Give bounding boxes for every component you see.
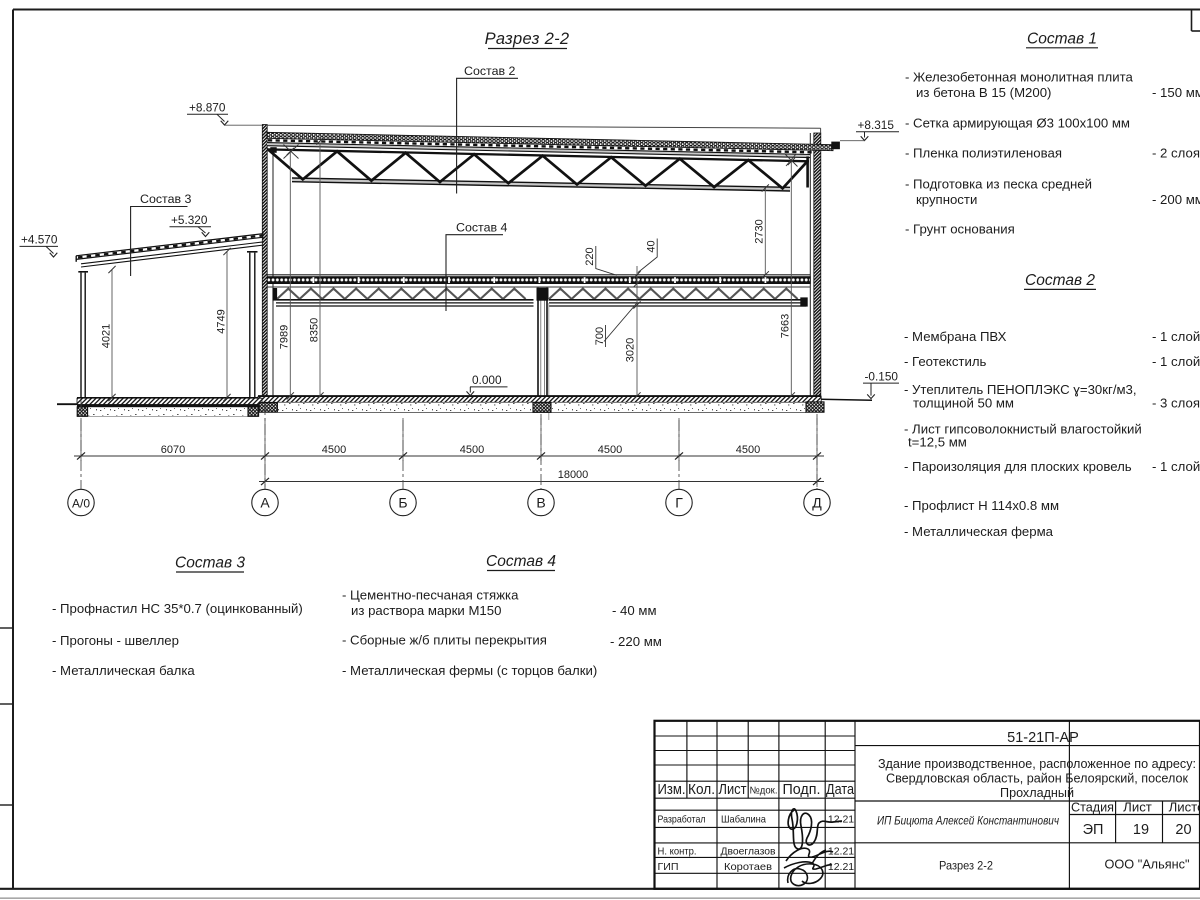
- svg-text:Коротаев: Коротаев: [724, 862, 772, 873]
- svg-text:№док.: №док.: [750, 785, 778, 796]
- svg-text:А: А: [260, 494, 270, 510]
- svg-text:40: 40: [645, 240, 657, 252]
- svg-text:Стадия: Стадия: [1071, 799, 1114, 814]
- svg-text:ЭП: ЭП: [1083, 822, 1104, 838]
- svg-text:- Подготовка из песка средней: - Подготовка из песка средней: [905, 177, 1092, 192]
- svg-text:А/0: А/0: [72, 496, 90, 510]
- svg-text:крупности: крупности: [916, 192, 977, 207]
- svg-text:Свердловская область, район Бе: Свердловская область, район Белоярский, …: [886, 771, 1189, 785]
- svg-text:2730: 2730: [753, 219, 765, 243]
- svg-text:+8.315: +8.315: [858, 118, 895, 132]
- svg-text:- Профлист Н 114х0.8 мм: - Профлист Н 114х0.8 мм: [904, 498, 1059, 513]
- svg-text:Разработал: Разработал: [658, 814, 706, 826]
- svg-text:- Железобетонная монолитная п: - Железобетонная монолитная плита: [905, 70, 1134, 85]
- svg-text:ГИП: ГИП: [658, 862, 679, 873]
- svg-text:ИП Бицюта Алексей Константинов: ИП Бицюта Алексей Константинович: [877, 814, 1059, 828]
- svg-text:4021: 4021: [100, 324, 112, 348]
- svg-text:12.21: 12.21: [828, 814, 854, 826]
- svg-text:- Металлическая ферма: - Металлическая ферма: [904, 524, 1054, 539]
- svg-text:18000: 18000: [558, 469, 589, 481]
- svg-text:Лист: Лист: [1123, 799, 1152, 814]
- svg-text:Лист: Лист: [719, 782, 747, 798]
- svg-text:51-21П-АР: 51-21П-АР: [1007, 730, 1079, 746]
- svg-text:- 3 слоя: - 3 слоя: [1152, 396, 1200, 411]
- svg-text:t=12,5 мм: t=12,5 мм: [908, 435, 967, 450]
- svg-text:0.000: 0.000: [472, 373, 502, 387]
- svg-text:12.21: 12.21: [828, 861, 854, 873]
- svg-text:220: 220: [584, 247, 596, 265]
- svg-text:Д: Д: [812, 494, 822, 510]
- svg-text:- Мембрана ПВХ: - Мембрана ПВХ: [904, 329, 1007, 344]
- svg-text:Здание производственное, распо: Здание производственное, расположенное п…: [878, 757, 1196, 771]
- svg-text:Кол.: Кол.: [688, 782, 715, 798]
- svg-text:Дата: Дата: [826, 782, 855, 798]
- svg-text:толщиной 50 мм: толщиной 50 мм: [913, 396, 1014, 411]
- svg-text:Листов: Листов: [1169, 799, 1200, 814]
- svg-text:- 40 мм: - 40 мм: [612, 603, 657, 618]
- svg-text:4749: 4749: [215, 309, 227, 333]
- svg-text:Состав 2: Состав 2: [464, 64, 515, 78]
- svg-text:- Металлическая фермы (с торцо: - Металлическая фермы (с торцов балки): [342, 663, 597, 678]
- svg-text:Двоеглазов: Двоеглазов: [721, 847, 776, 858]
- svg-text:В: В: [536, 494, 545, 510]
- svg-text:- 1 слой: - 1 слой: [1152, 459, 1200, 474]
- svg-text:Подп.: Подп.: [783, 782, 821, 798]
- svg-text:19: 19: [1133, 822, 1149, 838]
- svg-text:Разрез 2-2: Разрез 2-2: [485, 30, 570, 48]
- svg-text:20: 20: [1175, 822, 1191, 838]
- svg-text:- Пленка полиэтиленовая: - Пленка полиэтиленовая: [905, 146, 1062, 161]
- svg-text:Г: Г: [675, 494, 683, 510]
- svg-text:-0.150: -0.150: [865, 370, 899, 384]
- svg-text:Прохладный: Прохладный: [1000, 786, 1074, 800]
- svg-text:- 1 слой: - 1 слой: [1152, 354, 1200, 369]
- svg-text:из раствора марки М150: из раствора марки М150: [351, 603, 501, 618]
- svg-text:4500: 4500: [322, 444, 346, 456]
- svg-text:- Прогоны - швеллер: - Прогоны - швеллер: [52, 633, 179, 648]
- svg-text:- Грунт основания: - Грунт основания: [905, 222, 1015, 237]
- svg-text:- 2 слоя: - 2 слоя: [1152, 146, 1200, 161]
- svg-text:7663: 7663: [779, 314, 791, 338]
- svg-text:ООО "Альянс": ООО "Альянс": [1105, 856, 1190, 871]
- svg-text:- 1 слой: - 1 слой: [1152, 329, 1200, 344]
- svg-text:- 200 мм: - 200 мм: [1152, 192, 1200, 207]
- svg-text:+5.320: +5.320: [171, 213, 208, 227]
- svg-text:из бетона В 15 (М200): из бетона В 15 (М200): [916, 85, 1051, 100]
- svg-text:+4.570: +4.570: [21, 233, 58, 247]
- svg-text:Состав 4: Состав 4: [486, 553, 556, 570]
- svg-text:3020: 3020: [624, 338, 636, 362]
- svg-text:Состав 2: Состав 2: [1025, 272, 1095, 289]
- svg-text:- Сетка армирующая Ø3 100х100: - Сетка армирующая Ø3 100х100 мм: [905, 116, 1130, 131]
- svg-text:Шабалина: Шабалина: [721, 814, 766, 826]
- svg-text:- Цементно-песчаная стяжка: - Цементно-песчаная стяжка: [342, 588, 519, 603]
- svg-text:Состав 3: Состав 3: [140, 192, 191, 206]
- svg-text:- Металлическая балка: - Металлическая балка: [52, 663, 195, 678]
- svg-text:Состав 3: Состав 3: [175, 555, 245, 572]
- svg-text:Н. контр.: Н. контр.: [658, 847, 697, 858]
- svg-text:Б: Б: [398, 494, 407, 510]
- svg-text:Разрез 2-2: Разрез 2-2: [939, 859, 993, 873]
- svg-text:4500: 4500: [460, 444, 484, 456]
- svg-text:- 220 мм: - 220 мм: [610, 634, 662, 649]
- svg-text:- Геотекстиль: - Геотекстиль: [904, 354, 987, 369]
- svg-text:4500: 4500: [598, 444, 622, 456]
- svg-text:700: 700: [594, 327, 606, 345]
- svg-text:7989: 7989: [278, 325, 290, 349]
- svg-text:- Пароизоляция для плоских кро: - Пароизоляция для плоских кровель: [904, 459, 1132, 474]
- svg-text:- Профнастил НС 35*0.7 (оцинко: - Профнастил НС 35*0.7 (оцинкованный): [52, 601, 303, 616]
- svg-text:Состав 1: Состав 1: [1027, 31, 1097, 48]
- svg-text:6070: 6070: [161, 444, 185, 456]
- svg-text:4500: 4500: [736, 444, 760, 456]
- svg-text:- Сборные ж/б плиты перекрытия: - Сборные ж/б плиты перекрытия: [342, 633, 547, 648]
- svg-text:Изм.: Изм.: [658, 782, 686, 798]
- svg-text:+8.870: +8.870: [189, 101, 226, 115]
- svg-text:- 150 мм: - 150 мм: [1152, 85, 1200, 100]
- svg-text:8350: 8350: [308, 318, 320, 342]
- svg-text:Состав 4: Состав 4: [456, 221, 507, 235]
